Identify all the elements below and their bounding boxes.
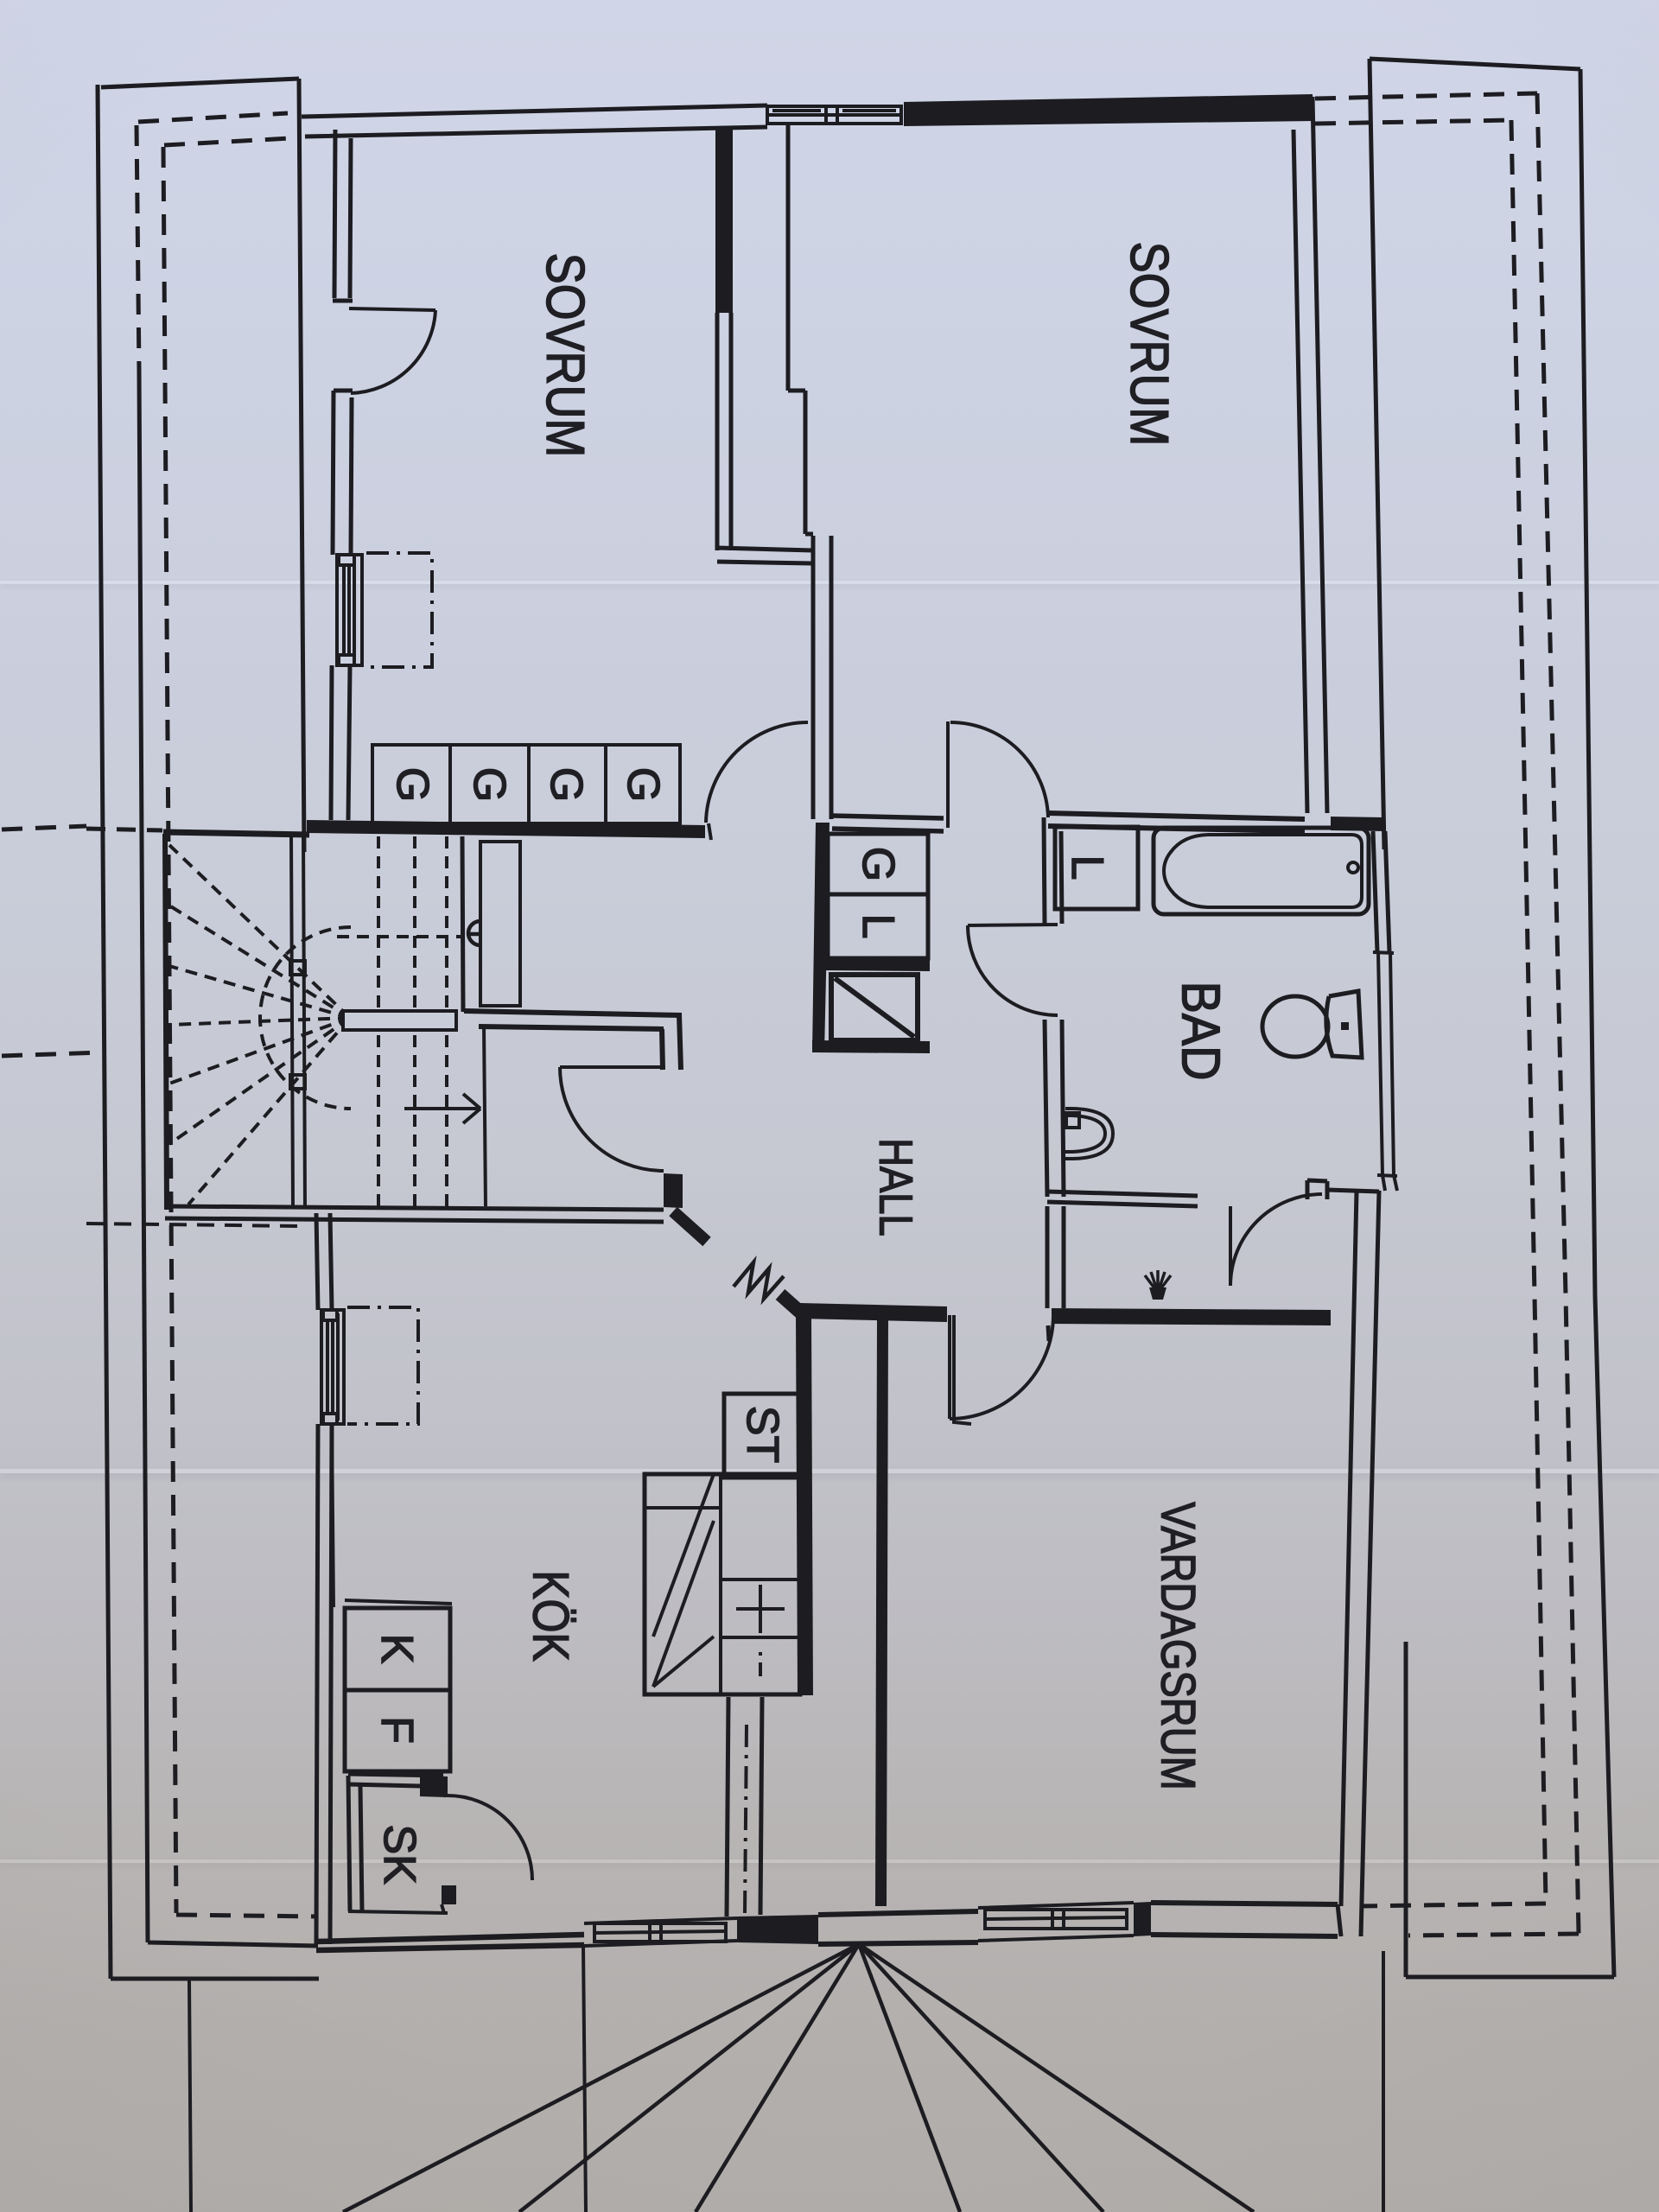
svg-text:G: G	[618, 767, 668, 802]
svg-text:F: F	[372, 1716, 422, 1744]
svg-text:KÖK: KÖK	[523, 1570, 578, 1661]
svg-text:K: K	[372, 1634, 422, 1664]
svg-text:HALL: HALL	[870, 1138, 923, 1236]
svg-text:G: G	[853, 847, 903, 881]
svg-text:SOVRUM: SOVRUM	[1119, 242, 1179, 447]
svg-text:G: G	[464, 767, 514, 802]
svg-text:SK: SK	[374, 1824, 424, 1885]
svg-text:VARDAGSRUM: VARDAGSRUM	[1152, 1502, 1206, 1790]
svg-text:L: L	[1062, 855, 1112, 880]
svg-text:BAD: BAD	[1171, 982, 1230, 1081]
svg-text:ST: ST	[737, 1406, 787, 1463]
svg-text:G: G	[541, 767, 591, 802]
svg-text:SOVRUM: SOVRUM	[535, 253, 594, 458]
svg-text:G: G	[387, 767, 437, 802]
svg-text:L: L	[853, 914, 903, 939]
